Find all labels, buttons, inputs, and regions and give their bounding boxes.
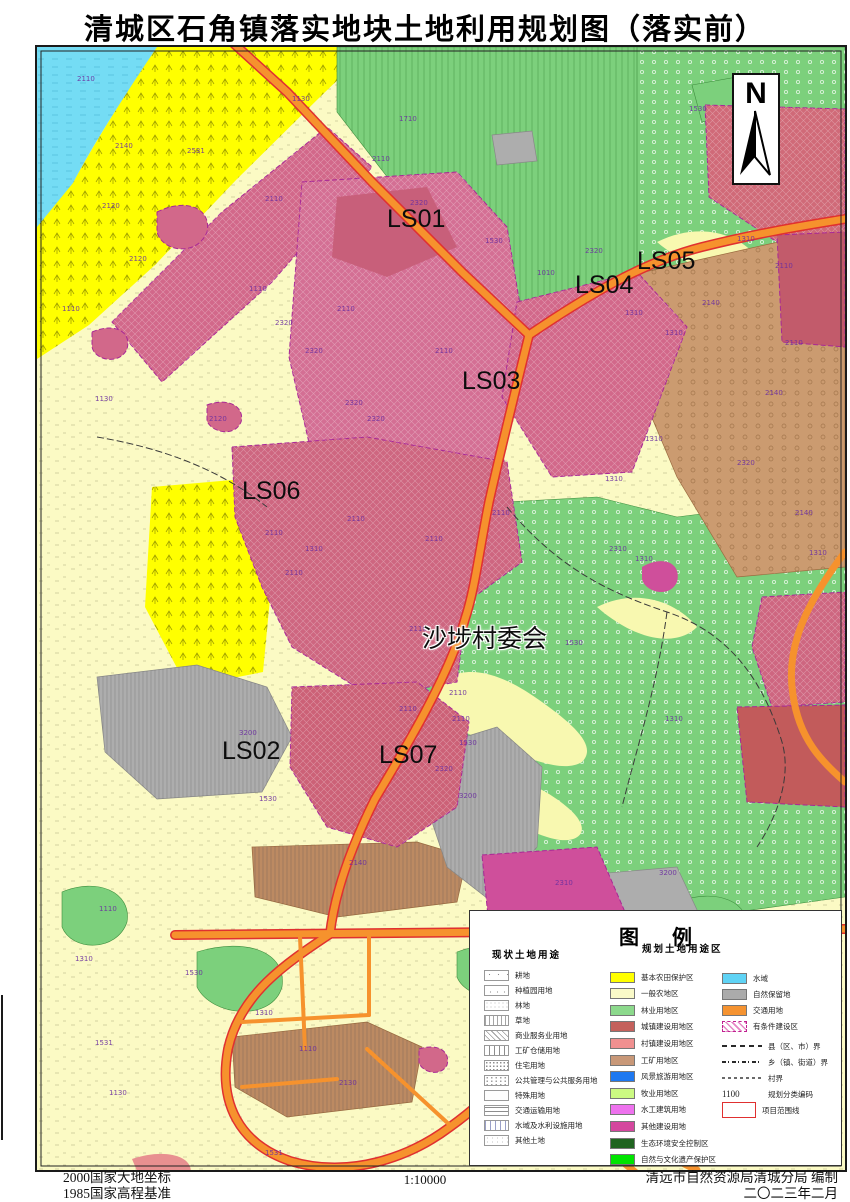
- legend-label: 工矿仓储用地: [515, 1045, 560, 1056]
- plan-code: 1530: [185, 969, 203, 977]
- legend-label: 种植园用地: [515, 985, 553, 996]
- legend-label: 工矿用地区: [641, 1055, 679, 1066]
- agency-line: 清远市自然资源局清城分局 编制: [646, 1170, 838, 1186]
- north-letter: N: [745, 77, 767, 110]
- legend-color-swatch: [610, 972, 635, 983]
- legend-current-item: 其他土地: [484, 1133, 545, 1147]
- legend-label: 交通运输用地: [515, 1105, 560, 1116]
- legend-current-item: 交通运输用地: [484, 1103, 560, 1117]
- plan-code: 1110: [249, 285, 267, 293]
- legend-swatch-fine-dots: [484, 1000, 509, 1011]
- legend-right-item: 水域: [722, 971, 768, 985]
- legend-color-swatch: [610, 1021, 635, 1032]
- legend-planned-item: 林业用地区: [610, 1003, 679, 1017]
- plan-code: 2110: [449, 689, 467, 697]
- plan-code: 2110: [337, 305, 355, 313]
- legend-color-swatch: [610, 1005, 635, 1016]
- legend-planned-item: 村镇建设用地区: [610, 1036, 694, 1050]
- legend-label: 城镇建设用地区: [641, 1021, 694, 1032]
- map-label-LS04: LS04: [575, 271, 633, 300]
- legend-right-item: 乡（镇、街道）界: [722, 1055, 828, 1069]
- plan-code: 2120: [102, 202, 120, 210]
- legend-label: 商业服务业用地: [515, 1030, 568, 1041]
- page-title: 清城区石角镇落实地块土地利用规划图（落实前）: [0, 6, 850, 48]
- legend-label: 林业用地区: [641, 1005, 679, 1016]
- plan-code: 2110: [452, 715, 470, 723]
- legend-label: 风景旅游用地区: [641, 1071, 694, 1082]
- legend-planned-item: 水工建筑用地: [610, 1103, 686, 1117]
- legend-color-swatch: [610, 988, 635, 999]
- conditional-zone-swatch: [722, 1021, 747, 1032]
- boundary-line-sample: [722, 1045, 762, 1047]
- legend-label: 生态环境安全控制区: [641, 1138, 709, 1149]
- plan-code: 1310: [255, 1009, 273, 1017]
- legend-current-item: 工矿仓储用地: [484, 1043, 560, 1057]
- plan-code: 1310: [809, 549, 827, 557]
- legend-label: 水域及水利设施用地: [515, 1120, 583, 1131]
- legend-planned-item: 其他建设用地: [610, 1119, 686, 1133]
- plan-code: 1310: [605, 475, 623, 483]
- plan-code: 3200: [459, 792, 477, 800]
- north-arrow-right: [755, 111, 770, 175]
- legend-current-item: 住宅用地: [484, 1058, 545, 1072]
- legend-right-item: 有条件建设区: [722, 1019, 798, 1033]
- plan-code: 1530: [689, 105, 707, 113]
- map-frame: 2110214025311130111011302120212023201110…: [35, 45, 847, 1172]
- plan-code: 1531: [95, 1039, 113, 1047]
- footer: 2000国家大地坐标 1985国家高程基准 1:10000 清远市自然资源局清城…: [0, 1168, 850, 1202]
- legend-color-swatch: [722, 989, 747, 1000]
- plan-code: 2140: [702, 299, 720, 307]
- legend-planned-item: 自然与文化遗产保护区: [610, 1153, 716, 1167]
- plan-code: 2110: [775, 262, 793, 270]
- legend-label: 乡（镇、街道）界: [768, 1057, 828, 1068]
- legend-current-item: 水域及水利设施用地: [484, 1118, 583, 1132]
- plan-code: 1010: [537, 269, 555, 277]
- date-line: 二〇二三年二月: [646, 1186, 838, 1202]
- legend-label: 一般农地区: [641, 988, 679, 999]
- plan-code: 2320: [435, 765, 453, 773]
- legend-planned-item: 牧业用地区: [610, 1086, 679, 1100]
- legend-label: 基本农田保护区: [641, 972, 694, 983]
- north-arrow-left: [740, 111, 755, 175]
- plan-code: 2310: [609, 545, 627, 553]
- legend-swatch-fine-dots2: [484, 1135, 509, 1146]
- map-label-LS05: LS05: [637, 247, 695, 276]
- project-boundary-sample: [722, 1102, 756, 1118]
- map-label-沙埗村委会: 沙埗村委会: [422, 619, 547, 655]
- legend-current-item: 特殊用地: [484, 1088, 545, 1102]
- legend-swatch-sparse-ticks: [484, 970, 509, 981]
- legend-right-item: 交通用地: [722, 1003, 783, 1017]
- map-label-LS02: LS02: [222, 737, 280, 766]
- legend-right-item: 项目范围线: [722, 1103, 800, 1117]
- legend-color-swatch: [610, 1055, 635, 1066]
- legend-swatch-plain: [484, 1090, 509, 1101]
- legend-header-planned: 规划土地用途区: [642, 941, 723, 955]
- plan-code: 2110: [285, 569, 303, 577]
- legend-swatch-dense-dots: [484, 1060, 509, 1071]
- legend-planned-item: 风景旅游用地区: [610, 1070, 694, 1084]
- legend-color-swatch: [722, 1005, 747, 1016]
- legend-label: 县（区、市）界: [768, 1041, 821, 1052]
- legend-label: 特殊用地: [515, 1090, 545, 1101]
- plan-code: 2110: [492, 509, 510, 517]
- plan-code: 1130: [109, 1089, 127, 1097]
- legend-label: 牧业用地区: [641, 1088, 679, 1099]
- plan-code: 1530: [459, 739, 477, 747]
- plan-code-sample: 1100: [722, 1089, 762, 1099]
- legend-swatch-diagonal: [484, 1030, 509, 1041]
- legend-label: 规划分类编码: [768, 1089, 813, 1100]
- legend-color-swatch: [722, 973, 747, 984]
- boundary-line-sample: [722, 1061, 762, 1063]
- legend-current-item: 林地: [484, 998, 530, 1012]
- legend-planned-item: 工矿用地区: [610, 1053, 679, 1067]
- plan-code: 2320: [585, 247, 603, 255]
- plan-code: 1310: [635, 555, 653, 563]
- plan-code: 2320: [367, 415, 385, 423]
- legend-current-item: 商业服务业用地: [484, 1028, 568, 1042]
- plan-code: 2110: [77, 75, 95, 83]
- legend-planned-item: 城镇建设用地区: [610, 1020, 694, 1034]
- plan-code: 2110: [785, 339, 803, 347]
- plan-code: 3200: [239, 729, 257, 737]
- plan-code: 1310: [665, 329, 683, 337]
- legend-swatch-horizontal: [484, 1105, 509, 1116]
- plan-code: 1110: [62, 305, 80, 313]
- legend-label: 村界: [768, 1073, 783, 1084]
- legend-planned-item: 一般农地区: [610, 987, 679, 1001]
- plan-code: 2140: [115, 142, 133, 150]
- legend-current-item: 草地: [484, 1013, 530, 1027]
- plan-code: 1310: [665, 715, 683, 723]
- legend-planned-item: 生态环境安全控制区: [610, 1136, 709, 1150]
- legend-right-item: 县（区、市）界: [722, 1039, 821, 1053]
- legend-swatch-dense-dots2: [484, 1075, 509, 1086]
- plan-code: 1310: [75, 955, 93, 963]
- legend-label: 水工建筑用地: [641, 1104, 686, 1115]
- legend-current-item: 公共管理与公共服务用地: [484, 1073, 598, 1087]
- plan-code: 1530: [485, 237, 503, 245]
- plan-code: 2110: [372, 155, 390, 163]
- legend-color-swatch: [610, 1104, 635, 1115]
- plan-code: 2110: [425, 535, 443, 543]
- legend-panel: 图 例 现状土地用途 规划土地用途区 耕地种植园用地林地草地商业服务业用地工矿仓…: [469, 910, 842, 1166]
- plan-code: 1531: [265, 1149, 283, 1157]
- legend-color-swatch: [610, 1121, 635, 1132]
- plan-code: 2110: [399, 705, 417, 713]
- plan-code: 2110: [265, 529, 283, 537]
- plan-code: 2320: [305, 347, 323, 355]
- plan-code: 1130: [292, 95, 310, 103]
- plan-code: 1710: [399, 115, 417, 123]
- legend-current-item: 种植园用地: [484, 983, 553, 997]
- plan-code: 3200: [659, 869, 677, 877]
- legend-right-item: 村界: [722, 1071, 783, 1085]
- legend-swatch-sparse-ticks2: [484, 985, 509, 996]
- plan-code: 2110: [435, 347, 453, 355]
- plan-code: 2320: [737, 459, 755, 467]
- plan-code: 2320: [345, 399, 363, 407]
- legend-color-swatch: [610, 1088, 635, 1099]
- plan-code: 2140: [765, 389, 783, 397]
- legend-right-item: 自然保留地: [722, 987, 791, 1001]
- map-label-LS03: LS03: [462, 367, 520, 396]
- legend-right-item: 1100规划分类编码: [722, 1087, 813, 1101]
- legend-current-item: 耕地: [484, 968, 530, 982]
- legend-label: 林地: [515, 1000, 530, 1011]
- legend-label: 住宅用地: [515, 1060, 545, 1071]
- plan-code: 1130: [95, 395, 113, 403]
- map-label-LS01: LS01: [387, 205, 445, 234]
- plan-code: 2110: [347, 515, 365, 523]
- plan-code: 2140: [349, 859, 367, 867]
- legend-color-swatch: [610, 1154, 635, 1165]
- legend-label: 村镇建设用地区: [641, 1038, 694, 1049]
- footer-agency: 清远市自然资源局清城分局 编制 二〇二三年二月: [646, 1170, 838, 1201]
- legend-label: 自然保留地: [753, 989, 791, 1000]
- page-border-fragment: [1, 995, 3, 1140]
- plan-code: 2120: [209, 415, 227, 423]
- legend-label: 自然与文化遗产保护区: [641, 1154, 716, 1165]
- plan-code: 2120: [129, 255, 147, 263]
- plan-code: 2531: [187, 147, 205, 155]
- plan-code: 1310: [737, 235, 755, 243]
- map-label-LS07: LS07: [379, 741, 437, 770]
- legend-color-swatch: [610, 1038, 635, 1049]
- legend-header-current: 现状土地用途: [492, 947, 561, 961]
- plan-code: 2110: [265, 195, 283, 203]
- legend-label: 耕地: [515, 970, 530, 981]
- legend-label: 项目范围线: [762, 1105, 800, 1116]
- legend-planned-item: 基本农田保护区: [610, 970, 694, 984]
- legend-label: 草地: [515, 1015, 530, 1026]
- plan-code: 2130: [339, 1079, 357, 1087]
- plan-code: 1110: [299, 1045, 317, 1053]
- map-label-LS06: LS06: [242, 477, 300, 506]
- plan-code: 1530: [259, 795, 277, 803]
- plan-code: 1310: [625, 309, 643, 317]
- legend-label: 水域: [753, 973, 768, 984]
- legend-label: 公共管理与公共服务用地: [515, 1075, 598, 1086]
- plan-code: 1310: [645, 435, 663, 443]
- legend-swatch-tick-columns: [484, 1120, 509, 1131]
- plan-code: 2310: [555, 879, 573, 887]
- legend-label: 有条件建设区: [753, 1021, 798, 1032]
- plan-code: 1530: [565, 639, 583, 647]
- legend-label: 交通用地: [753, 1005, 783, 1016]
- legend-swatch-vertical: [484, 1045, 509, 1056]
- plan-code: 1110: [99, 905, 117, 913]
- legend-color-swatch: [610, 1071, 635, 1082]
- legend-color-swatch: [610, 1138, 635, 1149]
- legend-label: 其他土地: [515, 1135, 545, 1146]
- plan-code: 2320: [275, 319, 293, 327]
- legend-label: 其他建设用地: [641, 1121, 686, 1132]
- plan-code: 1310: [305, 545, 323, 553]
- legend-swatch-dash-columns: [484, 1015, 509, 1026]
- plan-code: 2140: [795, 509, 813, 517]
- north-arrow: N: [732, 73, 780, 185]
- boundary-line-sample: [722, 1077, 762, 1079]
